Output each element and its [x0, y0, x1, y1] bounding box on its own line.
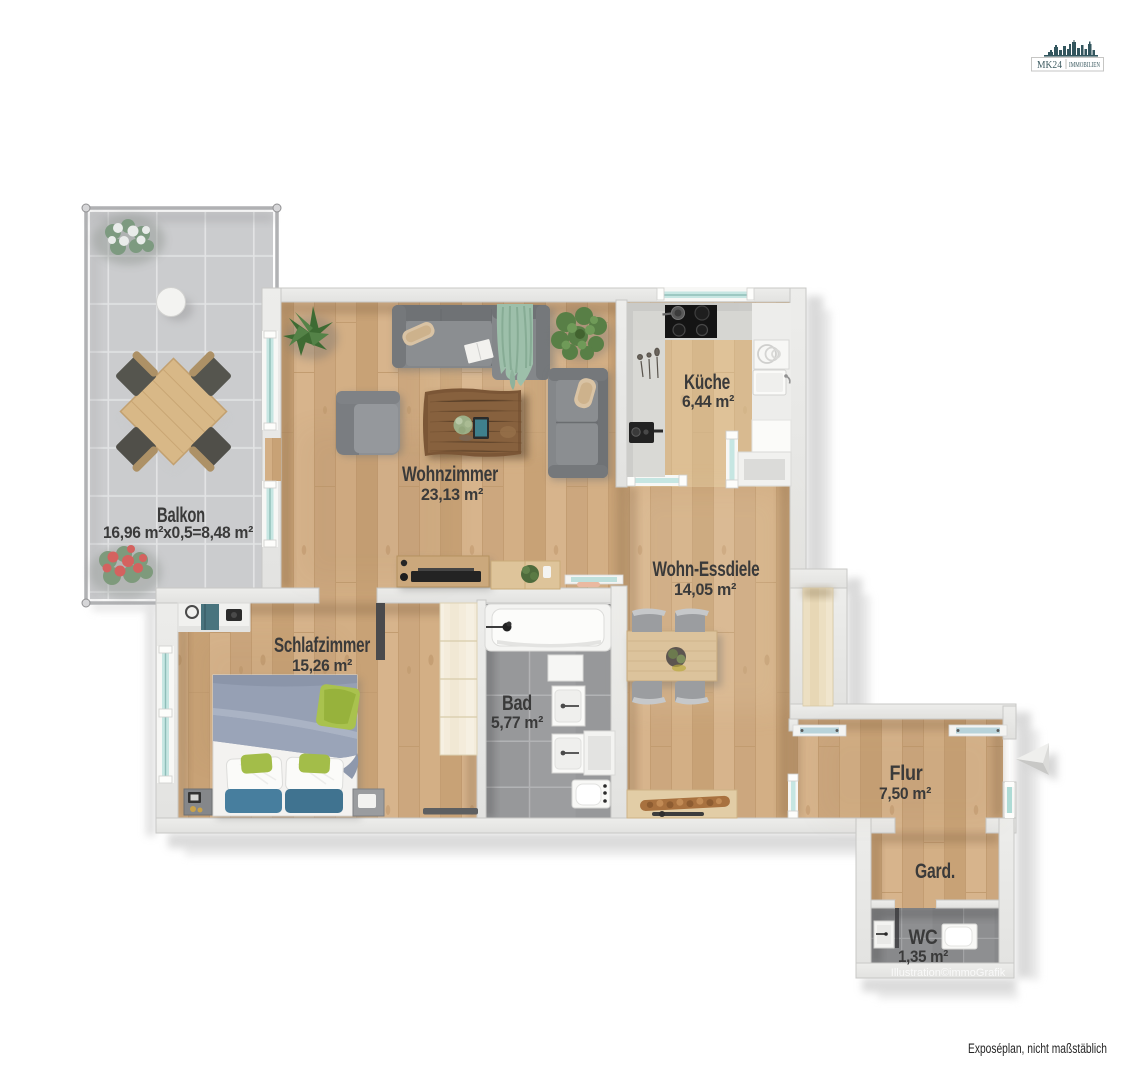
svg-text:Wohn-Essdiele: Wohn-Essdiele — [653, 558, 760, 581]
svg-text:WC: WC — [909, 926, 938, 949]
svg-text:1,35 m²: 1,35 m² — [898, 948, 949, 966]
svg-text:Exposéplan, nicht maßstäblich: Exposéplan, nicht maßstäblich — [968, 1041, 1107, 1056]
svg-text:Illustration©immoGrafik: Illustration©immoGrafik — [891, 967, 1006, 979]
svg-text:Bad: Bad — [502, 692, 532, 715]
svg-text:MK24: MK24 — [1037, 60, 1062, 71]
svg-text:Gard.: Gard. — [915, 860, 955, 883]
svg-text:Wohnzimmer: Wohnzimmer — [402, 463, 498, 486]
svg-text:16,96 m²x0,5=8,48 m²: 16,96 m²x0,5=8,48 m² — [103, 524, 254, 542]
svg-text:7,50 m²: 7,50 m² — [879, 785, 932, 803]
svg-text:5,77 m²: 5,77 m² — [491, 714, 544, 732]
svg-text:Küche: Küche — [684, 371, 730, 394]
svg-text:14,05 m²: 14,05 m² — [674, 581, 737, 599]
svg-text:Flur: Flur — [890, 762, 923, 785]
svg-text:IMMOBILIEN: IMMOBILIEN — [1069, 61, 1101, 69]
svg-text:23,13 m²: 23,13 m² — [421, 486, 484, 504]
svg-text:15,26 m²: 15,26 m² — [292, 657, 353, 675]
svg-text:Schlafzimmer: Schlafzimmer — [274, 634, 370, 657]
svg-text:6,44 m²: 6,44 m² — [682, 393, 735, 411]
